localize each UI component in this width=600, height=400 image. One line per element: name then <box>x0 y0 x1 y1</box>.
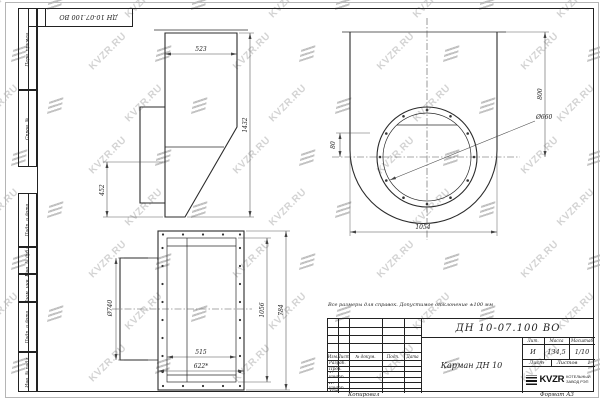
bolt-hole <box>161 283 163 285</box>
tb-col-dokum: № докум. <box>349 352 382 360</box>
bolt-hole <box>449 115 452 118</box>
tb-sheet-label: Лист <box>522 359 551 366</box>
tb-lit-value: И <box>522 344 544 359</box>
bolt-hole <box>449 196 452 199</box>
reference-note: Все размеры для справок. Допустимое откл… <box>328 302 493 308</box>
bolt-hole <box>402 196 405 199</box>
tb-scale-value: 1/10 <box>569 344 595 359</box>
bolt-hole <box>466 179 469 182</box>
company-logo-mark-icon <box>526 375 537 385</box>
tb-row-tkontr: Т. контр. <box>328 371 350 377</box>
bolt-hole <box>182 233 184 235</box>
drawing-sheet: { "watermark": { "text": "KVZR.RU" }, "m… <box>0 0 600 400</box>
rear-view: Ø740 515 622* 1056 784 <box>107 231 290 390</box>
bolt-hole <box>162 233 164 235</box>
front-view: 80 Ø660 800 1054 <box>330 18 553 240</box>
company-logo-text: KVZR <box>539 374 564 385</box>
bolt-hole <box>385 132 388 135</box>
tb-sheets-label: Листов <box>551 359 583 366</box>
dim-rear-outer-width: 622* <box>194 363 208 370</box>
title-block: Изм. Лист № докум. Подп. Дата Разраб. Пр… <box>327 318 594 392</box>
dim-front-width: 1054 <box>415 224 430 231</box>
tb-col-data: Дата <box>404 352 421 360</box>
tb-row-utv: Утв. <box>328 388 350 394</box>
bolt-hole <box>182 385 184 387</box>
bolt-hole <box>239 337 241 339</box>
bolt-hole <box>162 385 164 387</box>
dim-rear-inner-height: 1056 <box>259 302 266 317</box>
bolt-hole <box>161 247 163 249</box>
dim-rear-inner-width: 515 <box>195 349 207 356</box>
bolt-hole <box>239 355 241 357</box>
bolt-hole <box>239 265 241 267</box>
tb-col-izm: Изм. <box>328 352 338 360</box>
dim-side-flange: 452 <box>99 184 106 197</box>
bolt-hole <box>161 337 163 339</box>
bolt-hole <box>239 247 241 249</box>
bolt-hole <box>202 233 204 235</box>
bolt-hole <box>161 265 163 267</box>
tb-mass-label: Масса <box>544 337 569 344</box>
bolt-hole <box>239 319 241 321</box>
copied-label: Копировал <box>348 392 379 398</box>
tb-line <box>328 377 421 378</box>
bolt-hole <box>239 233 241 235</box>
bolt-hole <box>161 355 163 357</box>
tb-line <box>328 335 421 336</box>
bolt-hole <box>466 132 469 135</box>
dim-side-height: 1432 <box>242 117 249 132</box>
bolt-hole <box>222 385 224 387</box>
bolt-hole <box>239 301 241 303</box>
dim-rear-outer-height: 784 <box>278 304 285 316</box>
tb-col-list: Лист <box>338 352 349 360</box>
company-name-line2: ЗАВОД РЭП <box>566 380 590 384</box>
company-name: КОТЕЛЬНЫЙ ЗАВОД РЭП <box>566 375 590 384</box>
dim-rear-stub: Ø740 <box>107 300 114 318</box>
dim-front-offset: 80 <box>330 141 337 149</box>
bolt-hole <box>385 179 388 182</box>
tb-line <box>328 343 421 344</box>
dim-front-diameter: Ø660 <box>535 114 553 121</box>
dim-side-top-width: 523 <box>195 46 207 53</box>
dim-front-height: 800 <box>537 88 544 100</box>
tb-lit-label: Лит. <box>522 337 544 344</box>
bolt-hole <box>161 301 163 303</box>
tb-col-podp: Подп. <box>382 352 404 360</box>
bolt-hole <box>239 385 241 387</box>
tb-part-name: Карман ДН 10 <box>421 337 522 393</box>
tb-sheets-value: 1 <box>583 359 595 366</box>
bolt-hole <box>222 233 224 235</box>
bolt-hole <box>402 115 405 118</box>
tb-company-cell: KVZR КОТЕЛЬНЫЙ ЗАВОД РЭП <box>522 366 595 393</box>
tb-scale-label: Масштаб <box>569 337 595 344</box>
tb-designation: ДН 10-07.100 ВО <box>421 319 595 337</box>
side-view: 523 1432 452 <box>99 30 254 217</box>
bolt-hole <box>161 319 163 321</box>
format-label: Формат А3 <box>540 392 574 398</box>
tb-line <box>328 327 421 328</box>
tb-mass-value: 134,5 <box>544 344 569 359</box>
bolt-hole <box>239 283 241 285</box>
bolt-hole <box>202 385 204 387</box>
